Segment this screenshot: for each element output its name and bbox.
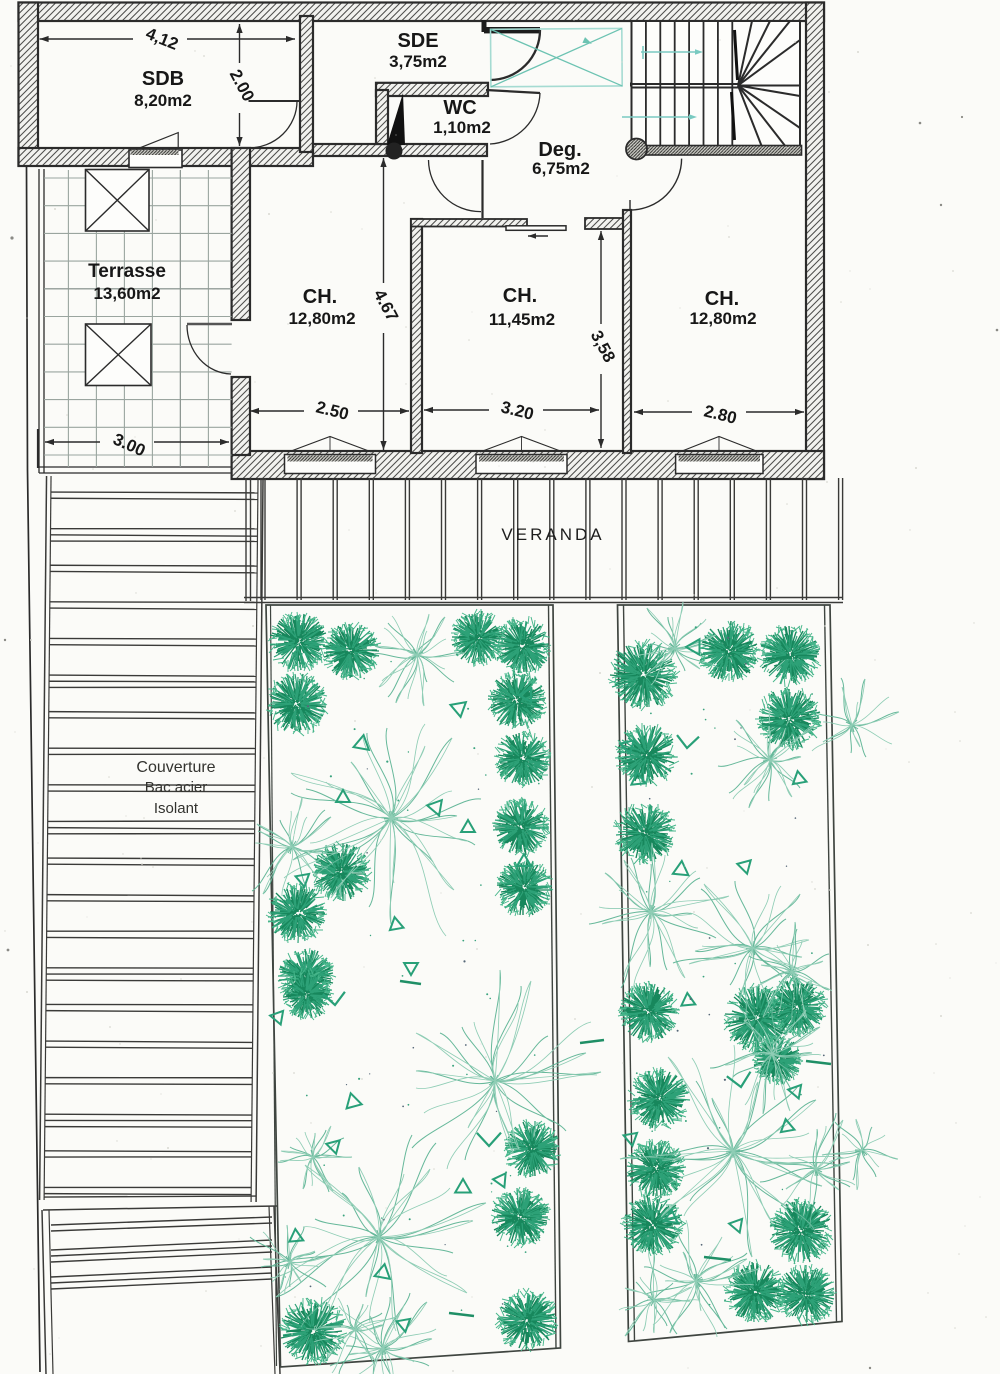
svg-text:3,75m2: 3,75m2 <box>389 52 447 71</box>
svg-text:CH.: CH. <box>303 286 337 308</box>
svg-text:CH.: CH. <box>705 288 739 310</box>
svg-text:13,60m2: 13,60m2 <box>93 284 160 303</box>
svg-text:12,80m2: 12,80m2 <box>288 309 355 328</box>
svg-text:1,10m2: 1,10m2 <box>433 118 491 137</box>
svg-text:6,75m2: 6,75m2 <box>532 159 590 178</box>
svg-text:Couverture: Couverture <box>136 759 215 776</box>
svg-text:Deg.: Deg. <box>538 139 581 161</box>
svg-text:Terrasse: Terrasse <box>88 261 166 282</box>
svg-text:11,45m2: 11,45m2 <box>489 310 555 329</box>
svg-text:8,20m2: 8,20m2 <box>134 91 192 110</box>
svg-text:CH.: CH. <box>503 285 537 307</box>
svg-text:WC: WC <box>443 97 476 119</box>
svg-text:Bac acier: Bac acier <box>145 779 208 796</box>
svg-text:VERANDA: VERANDA <box>501 525 604 544</box>
svg-text:12,80m2: 12,80m2 <box>689 309 756 328</box>
svg-text:SDE: SDE <box>397 30 438 52</box>
svg-text:Isolant: Isolant <box>154 800 199 817</box>
svg-text:SDB: SDB <box>142 68 184 90</box>
